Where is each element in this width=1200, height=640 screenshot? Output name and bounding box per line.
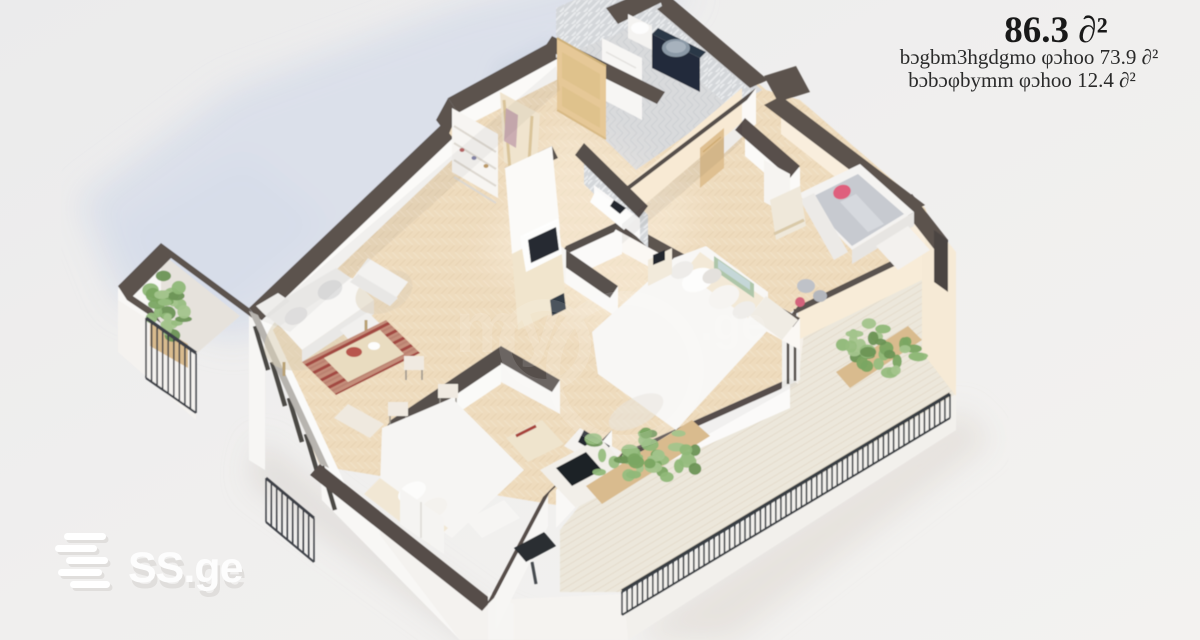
svg-text:SS.ge: SS.ge — [128, 544, 243, 592]
svg-text:bɔgbm3hgdgmo φɔhoo 73.9 ∂²: bɔgbm3hgdgmo φɔhoo 73.9 ∂² — [900, 45, 1159, 69]
svg-text:.ge: .ge — [700, 298, 766, 350]
svg-text:bɔbɔφbymm φɔhoo 12.4 ∂²: bɔbɔφbymm φɔhoo 12.4 ∂² — [908, 68, 1136, 92]
